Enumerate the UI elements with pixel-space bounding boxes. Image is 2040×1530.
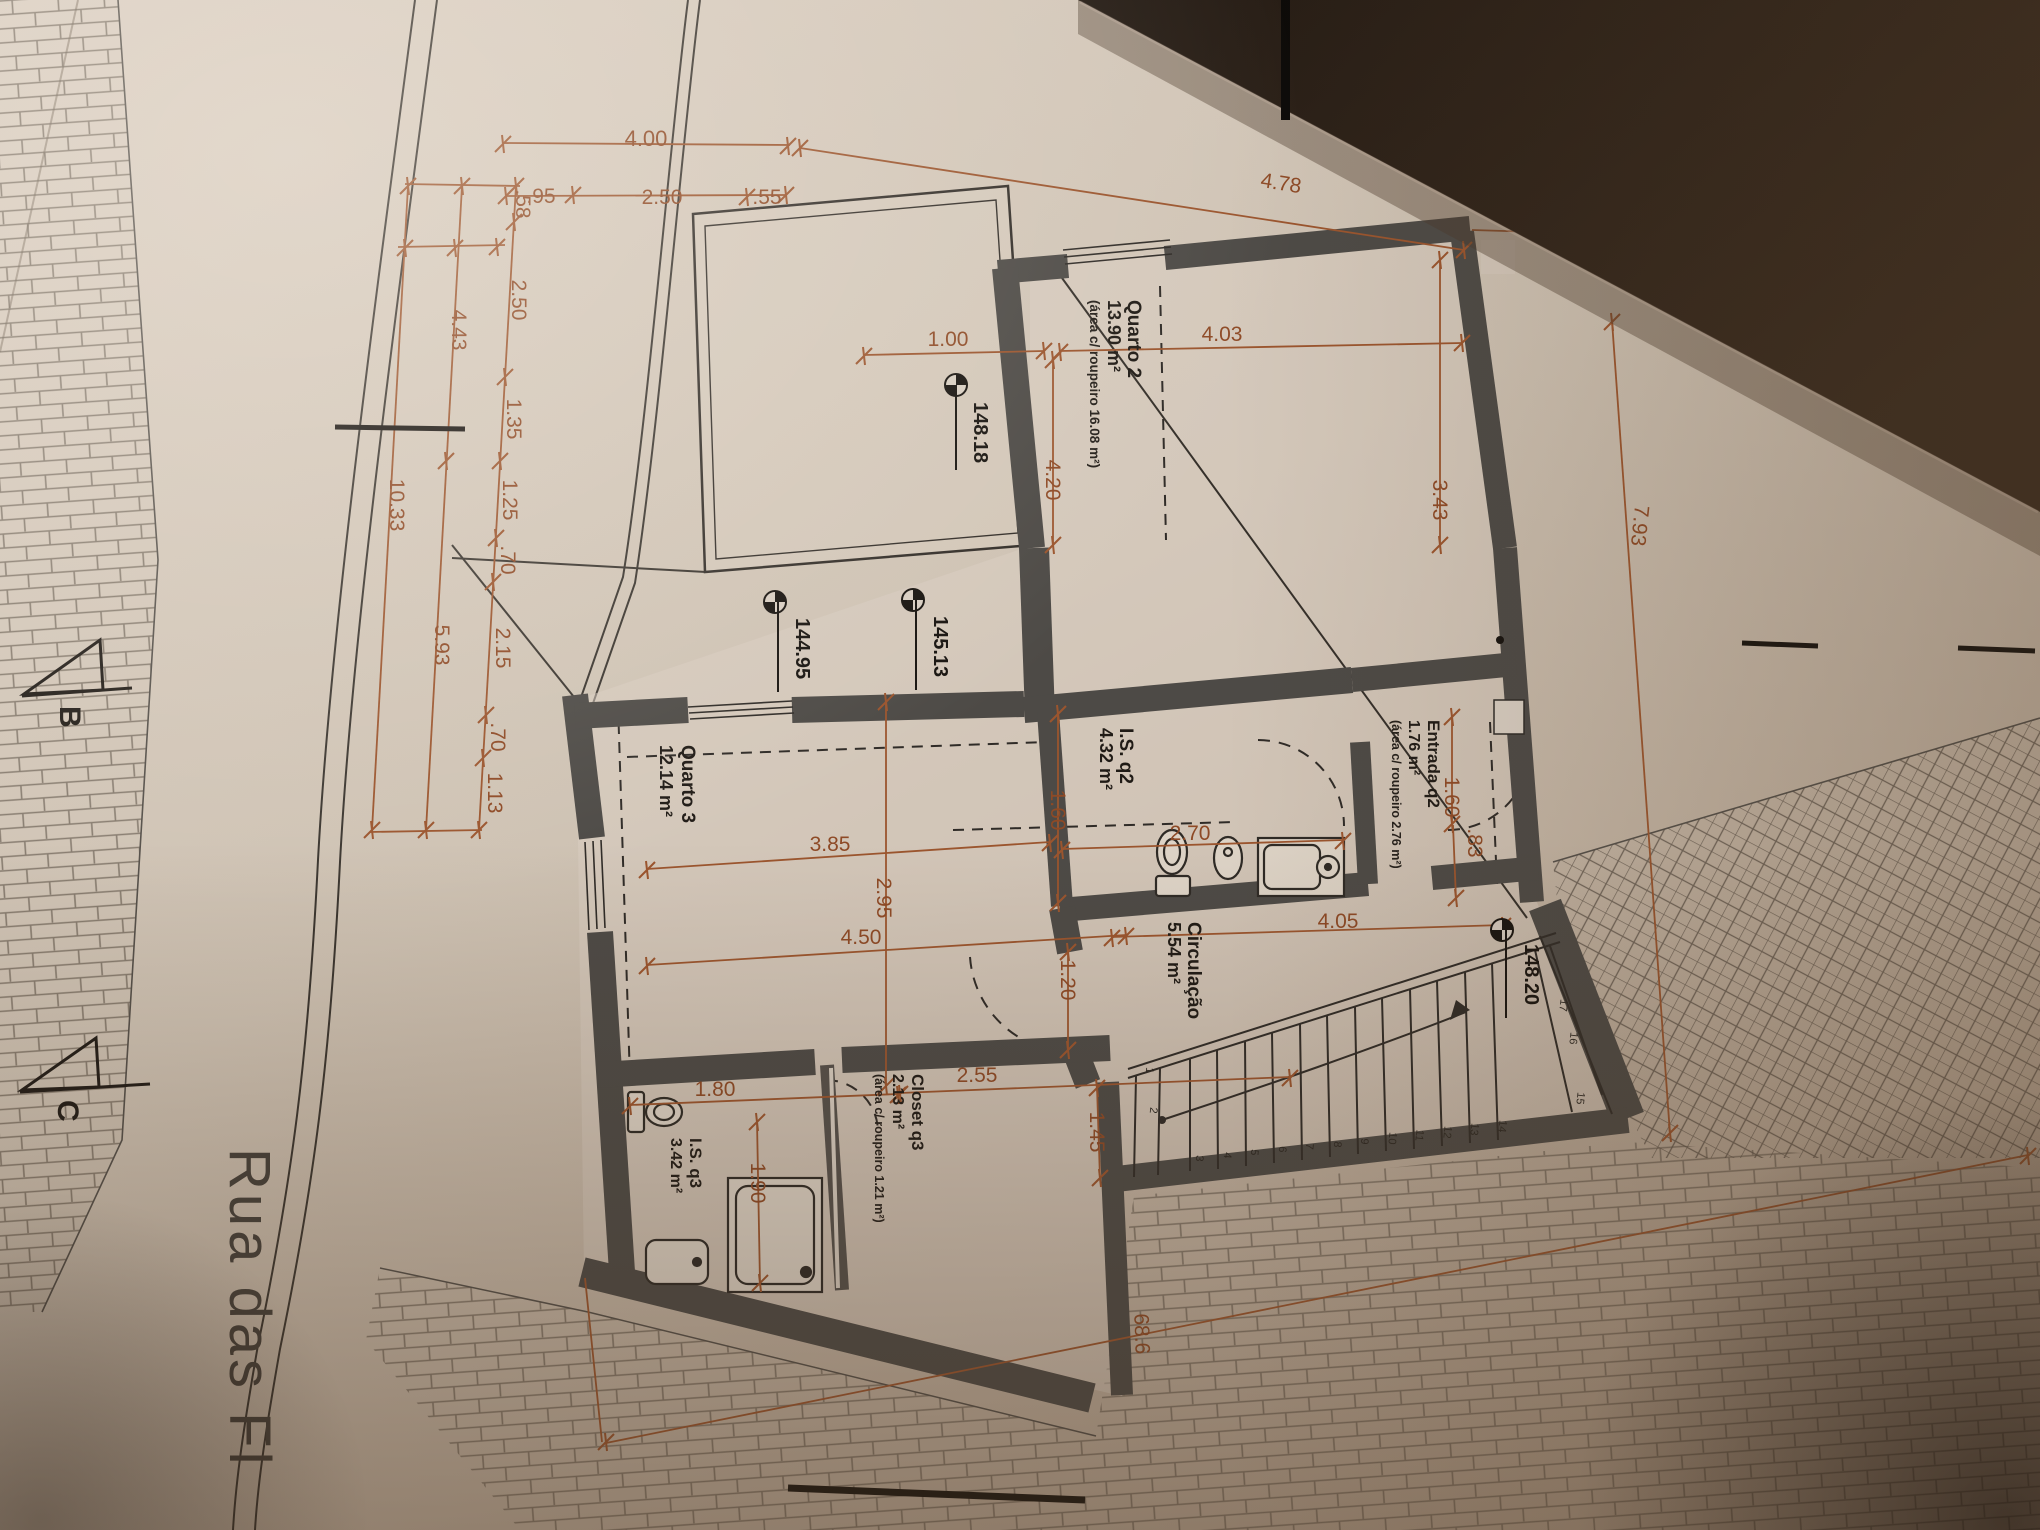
plan-drawing: 1 2 3 4 5 6 7 8 9 10 11 12 13 14 15 16 1… xyxy=(0,0,2040,1530)
floor-plan-photo: 1 2 3 4 5 6 7 8 9 10 11 12 13 14 15 16 1… xyxy=(0,0,2040,1530)
vignette-overlay xyxy=(0,0,2040,1530)
